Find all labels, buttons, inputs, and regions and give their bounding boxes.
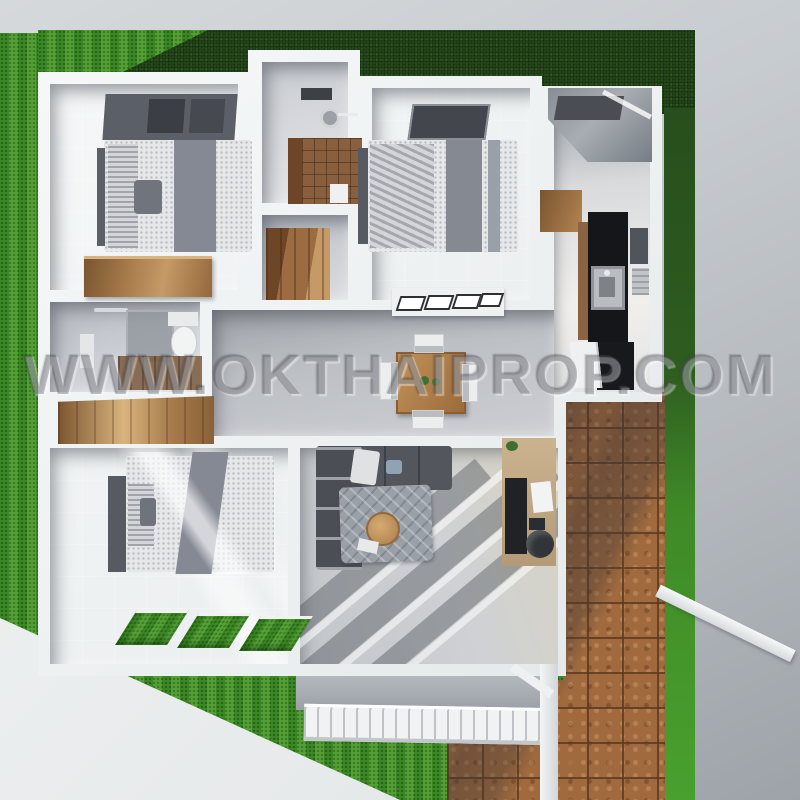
lawn-right-strip [664,108,695,800]
pergola-slat-gate [304,704,557,745]
wall-panel-dark [630,228,648,264]
light-streak [104,452,274,574]
desk-plant [506,441,518,451]
paper-sheet [530,481,553,513]
louver [396,296,427,311]
bed-1 [104,140,252,252]
shower-tile-wall [288,138,362,204]
pillow [370,144,434,248]
sofa-cushion-blue [386,460,402,474]
black-kitchen-unit [588,212,628,342]
blanket-gray-band [446,140,482,252]
upper-wood-cabinet [540,190,582,232]
wall-panel-light [632,268,649,295]
blanket-gray-band [488,140,500,252]
bed-side-rail [97,148,105,246]
watermark: WWW.OKTHAIPROP.COM [0,342,800,408]
bed-2 [358,140,518,252]
rain-shower-slab [301,88,332,100]
stainless-sink [591,266,625,310]
shower-head-icon [320,108,340,128]
louver [424,295,455,310]
panel-inset [147,99,185,133]
bed-side-rail [358,148,368,244]
toilet-tank [168,312,198,326]
dresser [84,256,212,297]
faucet-icon [604,270,610,276]
dining-chair [412,410,444,429]
panel-inset [189,99,225,133]
floor-plan-render: WWW.OKTHAIPROP.COM [0,0,800,800]
window-slab [407,104,490,140]
louvered-desk [392,288,504,316]
lawn-left [0,33,40,623]
shower-arm [338,113,358,116]
sofa-throw-blanket [350,448,380,485]
shower-tray [330,184,348,203]
monitor [505,478,527,554]
towel-bar [94,308,128,312]
office-chair [526,530,554,558]
cushion [134,180,162,214]
keyboard [529,518,545,530]
headboard-panel [102,94,237,140]
sink-basin [599,277,615,297]
blanket-gray-band [174,140,216,252]
louver [478,293,505,307]
bed-3 [104,452,274,574]
wooden-wardrobe [266,228,330,300]
